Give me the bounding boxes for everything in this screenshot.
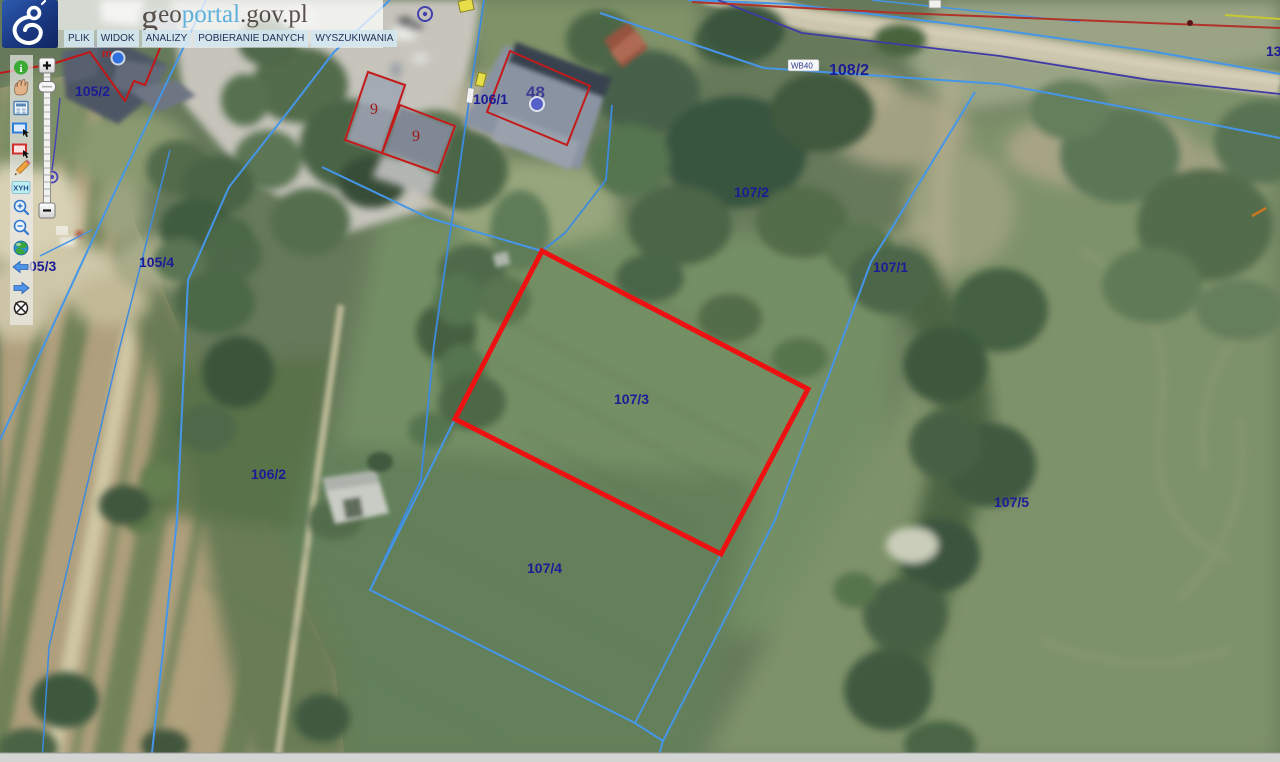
svg-text:108/2: 108/2 <box>829 62 869 79</box>
svg-text:105/4: 105/4 <box>139 254 174 270</box>
svg-text:XYH: XYH <box>13 184 28 193</box>
svg-text:107/3: 107/3 <box>614 391 649 407</box>
svg-text:i: i <box>19 63 22 75</box>
svg-text:106/1: 106/1 <box>473 91 508 107</box>
svg-text:107/5: 107/5 <box>994 494 1029 510</box>
svg-text:9: 9 <box>412 128 420 145</box>
svg-text:m: m <box>102 48 112 60</box>
svg-text:105/2: 105/2 <box>75 83 110 99</box>
svg-text:9: 9 <box>370 101 378 118</box>
svg-text:106/2: 106/2 <box>251 466 286 482</box>
svg-text:107/4: 107/4 <box>527 560 562 576</box>
svg-text:WB40: WB40 <box>791 62 813 71</box>
svg-text:13: 13 <box>1266 43 1280 59</box>
svg-text:107/2: 107/2 <box>734 184 769 200</box>
svg-text:107/1: 107/1 <box>873 259 908 275</box>
